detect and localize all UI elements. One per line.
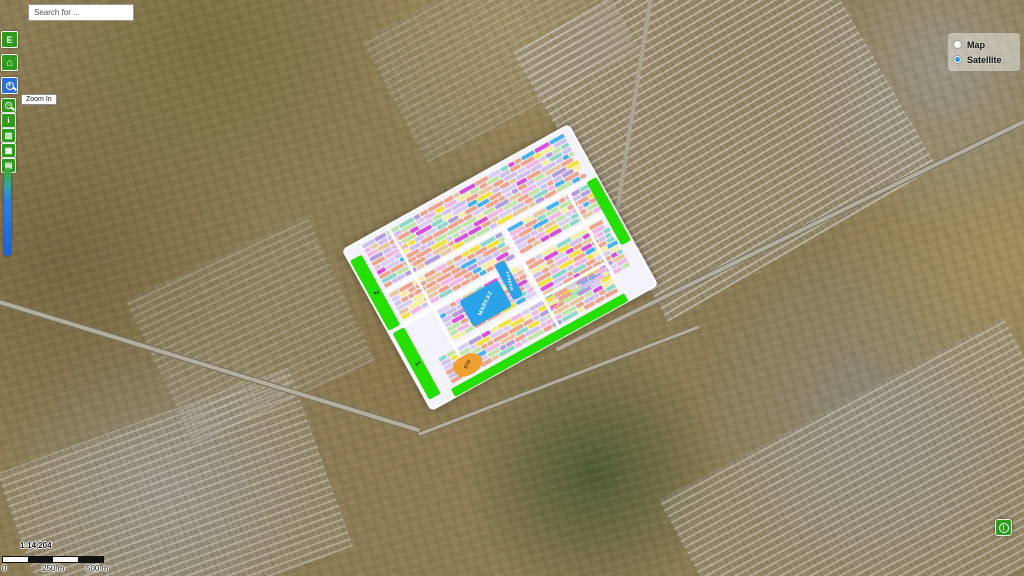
plan-block — [568, 151, 574, 157]
scale-tick: 250 m — [42, 564, 64, 573]
scale-segment — [3, 557, 28, 562]
scale-segment — [78, 557, 103, 562]
home-icon: ⌂ — [6, 57, 13, 69]
map-radio[interactable] — [953, 40, 962, 49]
map-option[interactable]: Map — [953, 37, 1015, 52]
satellite-radio[interactable] — [953, 55, 962, 64]
scale-segment — [53, 557, 78, 562]
strip-label: 1 — [413, 360, 421, 367]
zoom-out-button[interactable]: − — [1, 98, 16, 113]
extent-button[interactable]: E — [1, 31, 18, 48]
about-info-icon: i — [999, 523, 1009, 533]
map-option-label: Map — [967, 40, 985, 50]
zoom-in-tooltip: Zoom In — [21, 94, 57, 105]
zoom-slider[interactable] — [4, 168, 11, 256]
scale-tick: 500 m — [86, 564, 108, 573]
markaz-label: MARKAZ — [477, 290, 494, 316]
measure-distance-button[interactable]: ▥ — [1, 128, 16, 143]
area-icon: ▦ — [5, 146, 13, 155]
zoom-in-button[interactable]: + — [1, 77, 18, 94]
strip-label: 2 — [371, 289, 379, 296]
stp-label: STP — [463, 359, 473, 370]
search-input[interactable] — [28, 4, 134, 21]
info-tool-button[interactable]: i — [1, 113, 16, 128]
scale-bar — [2, 556, 104, 563]
satellite-option-label: Satellite — [967, 55, 1002, 65]
scale-ratio: 1:14,204 — [20, 541, 52, 550]
measure-area-button[interactable]: ▦ — [1, 143, 16, 158]
zoom-in-icon: + — [6, 82, 14, 90]
home-button[interactable]: ⌂ — [1, 54, 18, 71]
scale-segment — [28, 557, 53, 562]
map-viewport: 2 1 MARKAZ MARKAZ STP E ⌂ + − i ▥ ▦ — [0, 0, 1024, 576]
about-button[interactable]: i — [995, 519, 1012, 536]
scale-tick: 0 — [2, 564, 6, 573]
zoom-out-icon: − — [5, 102, 12, 109]
basemap-switcher: Map Satellite — [948, 33, 1020, 71]
satellite-option[interactable]: Satellite — [953, 52, 1015, 67]
measure-icon: ▥ — [5, 131, 13, 140]
info-icon: i — [7, 116, 9, 125]
extent-label: E — [6, 35, 12, 45]
